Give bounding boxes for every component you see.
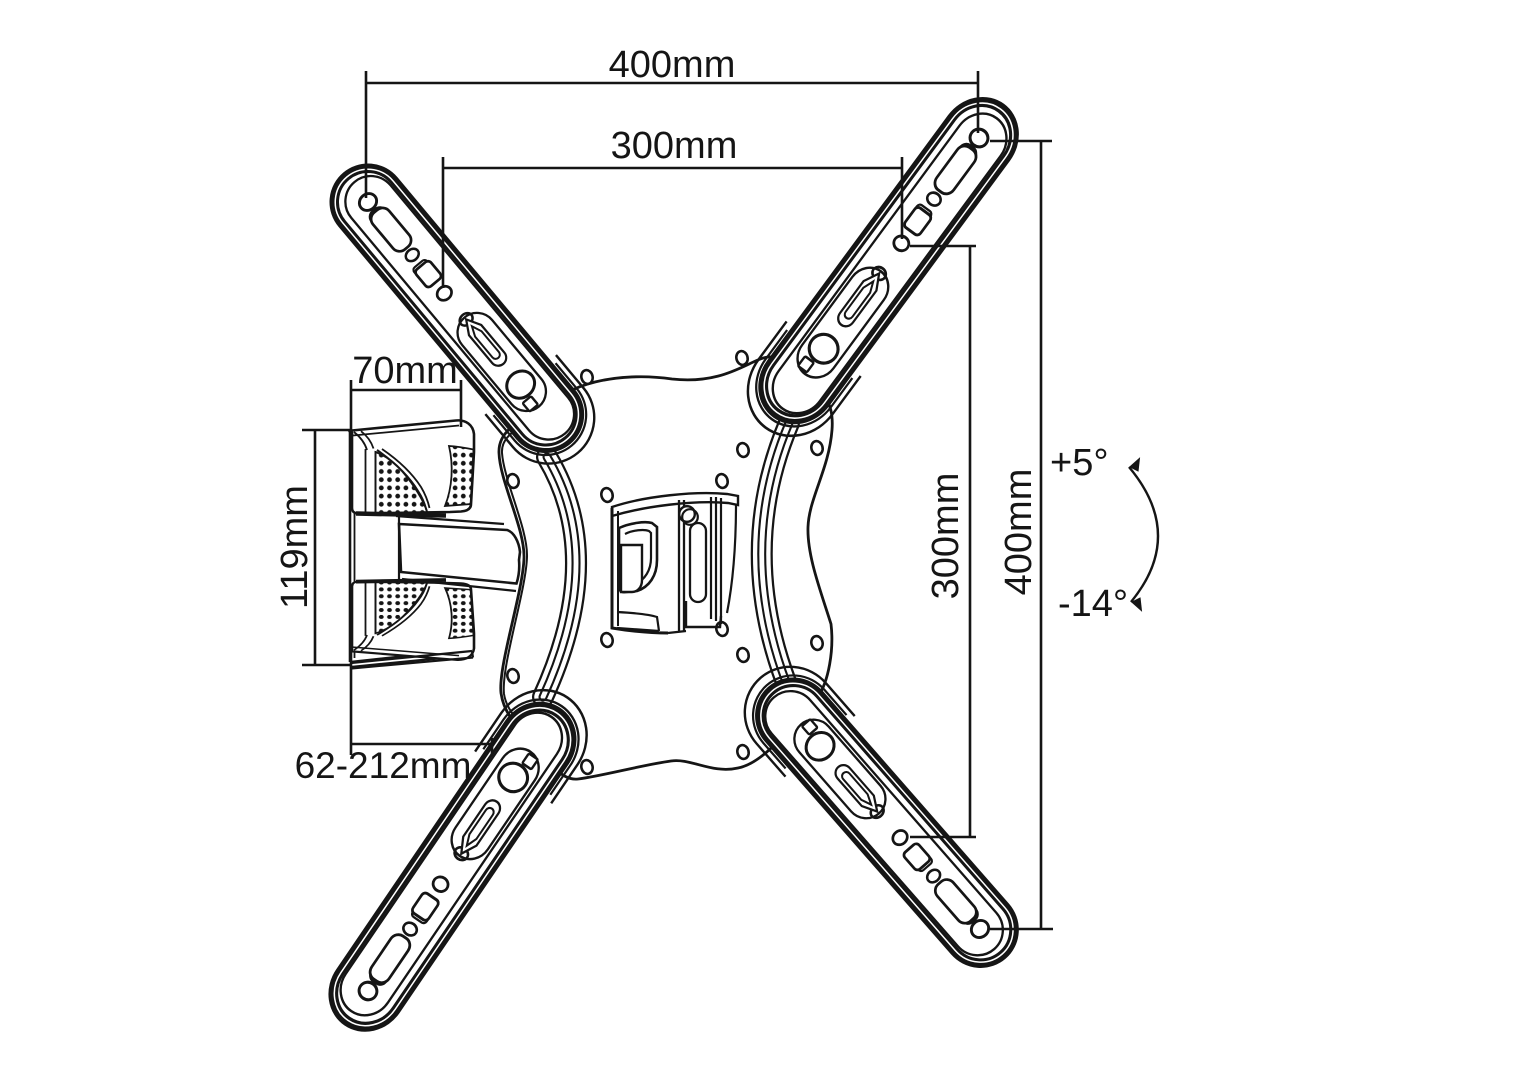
svg-text:300mm: 300mm xyxy=(611,125,738,167)
svg-text:300mm: 300mm xyxy=(925,473,967,600)
svg-text:400mm: 400mm xyxy=(998,469,1040,596)
svg-text:+5°: +5° xyxy=(1050,442,1109,484)
svg-text:-14°: -14° xyxy=(1058,583,1128,625)
svg-text:119mm: 119mm xyxy=(274,485,316,609)
svg-text:62-212mm: 62-212mm xyxy=(295,745,472,786)
svg-text:400mm: 400mm xyxy=(609,44,736,86)
svg-text:70mm: 70mm xyxy=(352,350,458,392)
